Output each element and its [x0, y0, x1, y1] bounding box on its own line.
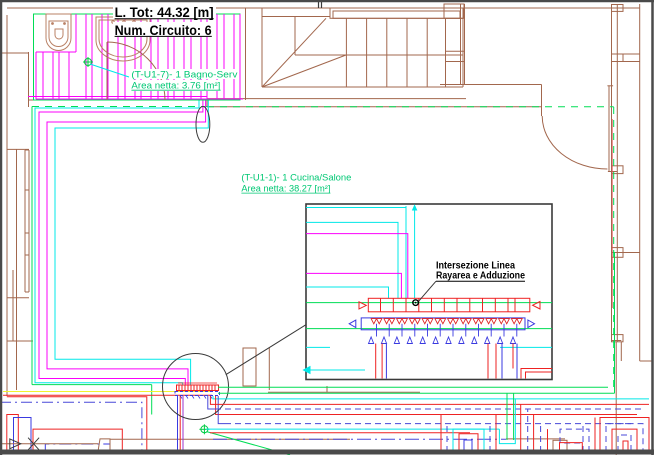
svg-text:Area netta: 38.27 [m²]: Area netta: 38.27 [m²]	[241, 183, 330, 193]
svg-text:(T-U1-7)- 1 Bagno-Serv: (T-U1-7)- 1 Bagno-Serv	[131, 70, 238, 80]
svg-text:Area netta: 3.76 [m²]: Area netta: 3.76 [m²]	[131, 81, 220, 91]
svg-text:(T-U1-1)- 1 Cucina/Salone: (T-U1-1)- 1 Cucina/Salone	[241, 173, 351, 183]
svg-text:Rayarea e Adduzione: Rayarea e Adduzione	[436, 270, 525, 281]
svg-text:Num. Circuito: 6: Num. Circuito: 6	[115, 22, 212, 38]
svg-text:L. Tot: 44.32 [m]: L. Tot: 44.32 [m]	[115, 4, 214, 20]
